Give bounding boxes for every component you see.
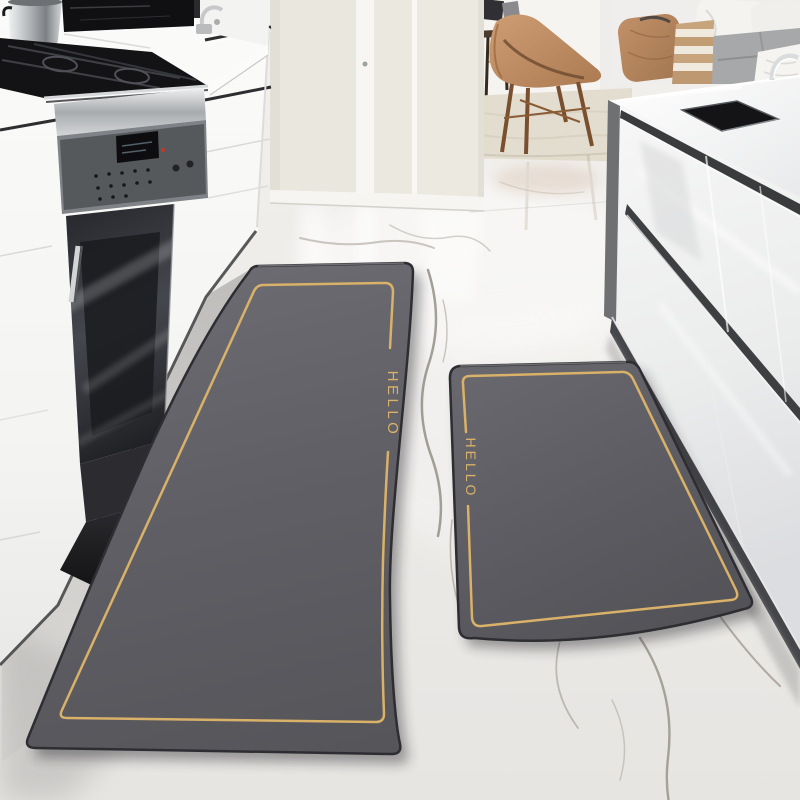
back-walls [270, 0, 484, 211]
door-handle [363, 62, 368, 67]
mat-small-hello-text: HELLO [463, 438, 479, 499]
oven-display [116, 131, 159, 163]
oven-indicator-light [161, 148, 165, 152]
oven-knob [172, 164, 180, 172]
oven-knob-2 [186, 160, 194, 168]
mat-large-hello-text: HELLO [384, 371, 401, 438]
wall-edge-shade [270, 0, 280, 194]
beige-wall-2 [374, 0, 414, 196]
kitchen-scene: HELLO HELLO [0, 0, 800, 800]
beige-wall [270, 0, 358, 194]
product-photo-kitchen-mats: HELLO HELLO [0, 0, 800, 800]
pillar-edge-shade [478, 0, 484, 200]
wall-pillar [417, 0, 484, 200]
white-door [356, 0, 374, 198]
